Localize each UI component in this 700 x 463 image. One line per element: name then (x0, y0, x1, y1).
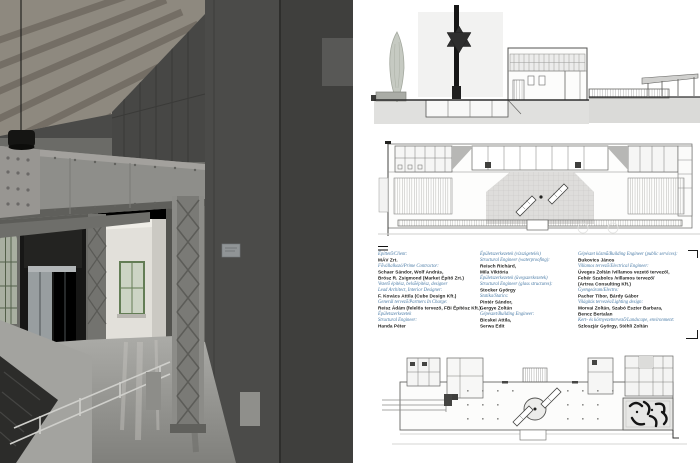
lower-floor-plan (382, 352, 700, 463)
left-rooms (395, 146, 452, 172)
pedestal (146, 372, 161, 410)
green-window (117, 262, 146, 318)
credits-column-3: Gépészet közmű/Building Engineer (public… (578, 251, 700, 329)
interior-photo (0, 0, 353, 463)
platform-wing (382, 398, 446, 412)
arched-window (0, 231, 17, 324)
credits-column-1: Építtető/Client:MÁV Zrt.Fővállalkozó/Pri… (378, 251, 478, 329)
dark-column-wall (205, 0, 353, 463)
center-rooms (472, 146, 608, 170)
book-spread: Építtető/Client:MÁV Zrt.Fővállalkozó/Pri… (0, 0, 700, 463)
corner-mark-bottom (686, 330, 698, 339)
right-room-cluster (588, 356, 673, 396)
credit-person-name: Handa Péter (378, 323, 478, 329)
credit-person-name: Szloszjár György, Stéhli Zoltán (578, 323, 700, 329)
upper-floor-plan (378, 140, 700, 250)
credits-block: Építtető/Client:MÁV Zrt.Fővállalkozó/Pri… (378, 246, 700, 342)
section-drawing (358, 4, 700, 142)
concrete-plinth (240, 392, 260, 426)
credit-person-name: Serwa Edit (480, 323, 576, 329)
tree (390, 32, 404, 102)
central-plaza (486, 172, 594, 224)
corner-mark-top (688, 250, 698, 258)
credits-column-2: Épületszerkezetek (vízszigetelés)Structu… (480, 251, 576, 329)
stair-tab (523, 368, 547, 382)
lattice-column (170, 196, 206, 433)
wall-plaque (222, 244, 240, 257)
garden-room (623, 398, 673, 430)
building-section (508, 48, 587, 100)
lattice-pier-far (88, 214, 106, 348)
section-divider-mark (378, 246, 388, 251)
